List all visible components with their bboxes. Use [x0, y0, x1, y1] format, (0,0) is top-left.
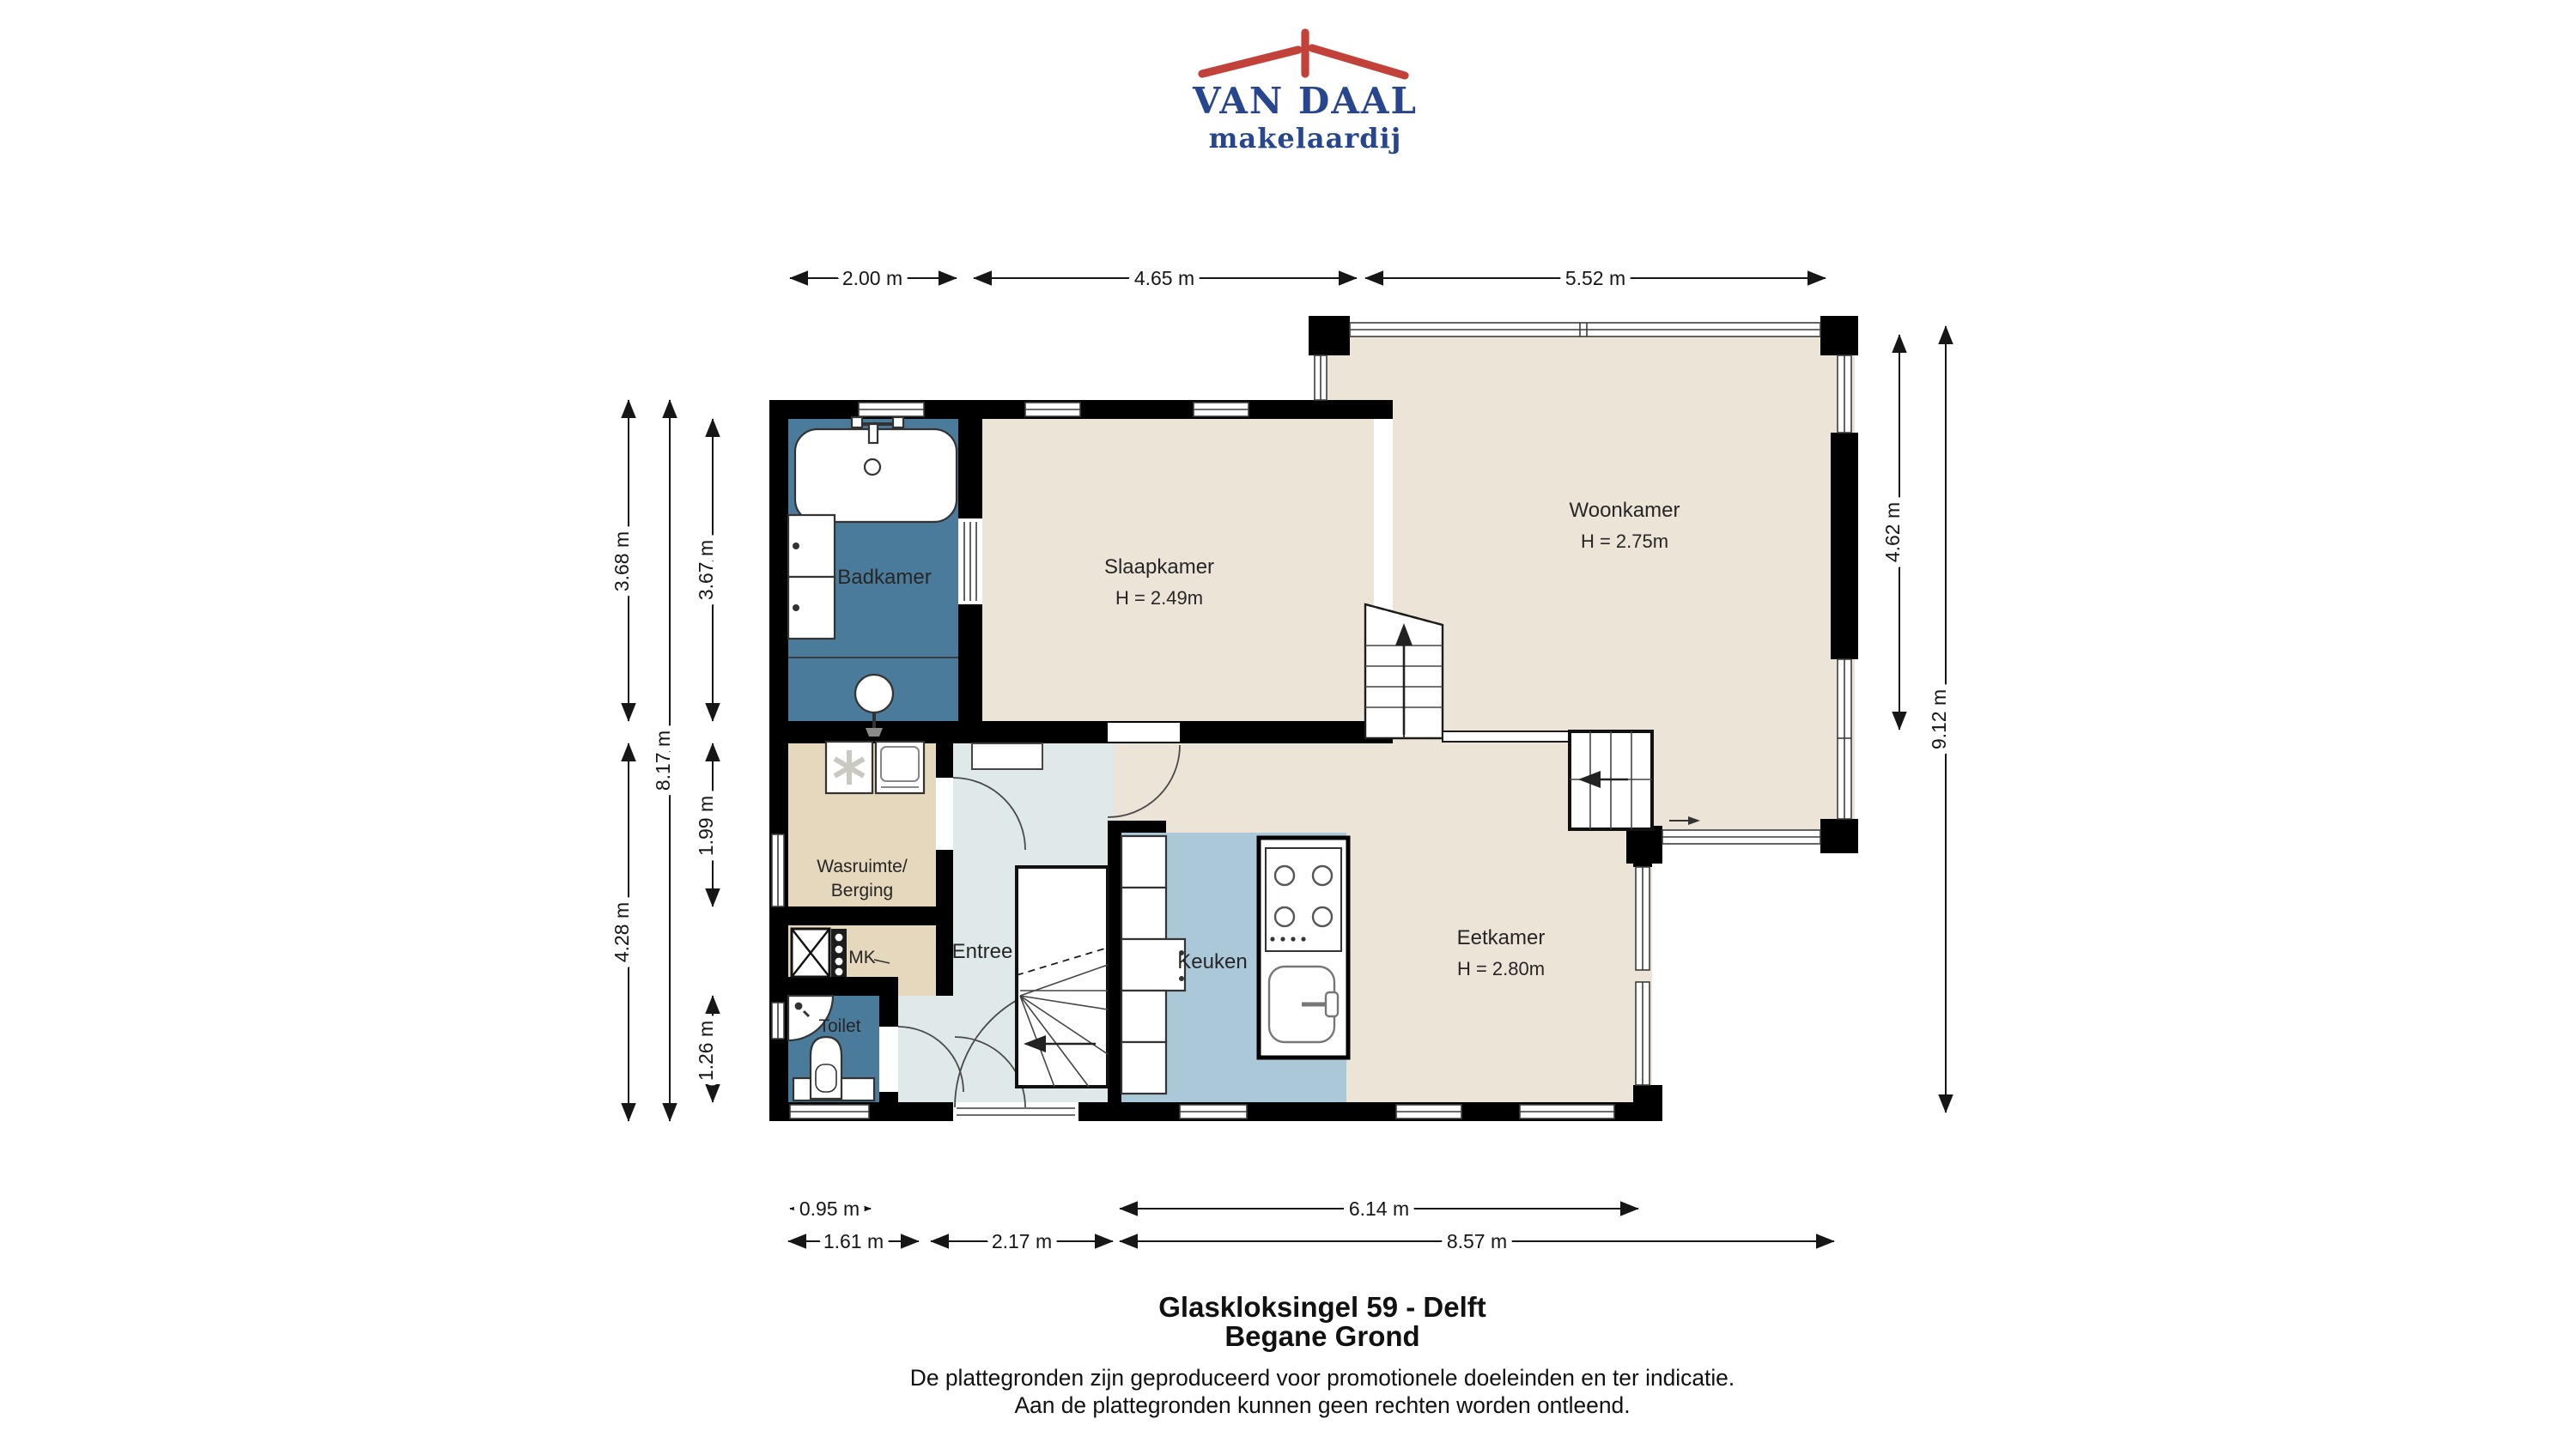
wall-woonkamer-right	[1831, 433, 1858, 659]
bathtub-fixture	[795, 417, 957, 522]
washing-machine-icon	[826, 742, 872, 793]
floorplan-page: VAN DAAL makelaardij	[0, 0, 2576, 1449]
window-badkamer-top	[859, 403, 924, 416]
dim-bottom-lower-3: 8.57 m	[1447, 1230, 1507, 1252]
window-woonkamer-right-1	[1838, 355, 1851, 433]
footer: Glaskloksingel 59 - Delft Begane Grond D…	[34, 1294, 2576, 1418]
pillar-woonkamer-topleft	[1309, 316, 1350, 355]
dim-right-inner: 4.62 m	[1881, 502, 1904, 562]
dim-bottom-lower-1: 1.61 m	[823, 1230, 884, 1252]
dim-top-2: 4.65 m	[1134, 267, 1194, 289]
window-slaapkamer-top-2	[1194, 403, 1249, 416]
stove-icon	[1266, 848, 1341, 951]
label-entree: Entree	[952, 940, 1013, 963]
window-eetkamer-right-2	[1636, 982, 1649, 1085]
floor-title: Begane Grond	[34, 1325, 2576, 1355]
dim-left-outer-1: 3.68 m	[611, 531, 633, 591]
window-bottom-2	[1180, 1105, 1247, 1119]
stairs-woonkamer-down	[1570, 731, 1652, 829]
wall-keuken-entree	[1108, 821, 1121, 1102]
meter-panel-icon	[831, 929, 847, 977]
window-woonkamer-right-2	[1838, 659, 1851, 819]
dim-left-inner-2: 1.99 m	[695, 796, 717, 856]
label-wasruimte-2: Berging	[831, 881, 893, 900]
entree-closet	[972, 743, 1042, 769]
label-slaapkamer-height: H = 2.49m	[1115, 587, 1203, 609]
window-bottom-3	[1396, 1105, 1461, 1119]
window-bottom-4	[1520, 1105, 1614, 1119]
dim-bottom-lower-2: 2.17 m	[992, 1230, 1052, 1252]
label-woonkamer-height: H = 2.75m	[1581, 530, 1668, 552]
label-wasruimte-1: Wasruimte/	[817, 857, 908, 876]
screenshot-root: VAN DAAL makelaardij	[0, 0, 2576, 1449]
window-wasruimte-left	[772, 834, 784, 906]
pillar-woonkamer-bottomright	[1820, 819, 1858, 853]
label-toilet: Toilet	[818, 1016, 860, 1036]
door-badkamer-sliding	[958, 518, 982, 604]
wall-wasruimte-bottom	[769, 906, 953, 925]
dim-left-middle: 8.17 m	[652, 731, 674, 791]
label-woonkamer: Woonkamer	[1570, 499, 1680, 522]
window-toilet-left	[772, 1003, 784, 1039]
dim-left-inner-3: 1.26 m	[695, 1021, 717, 1081]
vanity-fixture	[788, 515, 835, 639]
dim-left-inner-1: 3.67 m	[695, 540, 717, 600]
dryer-icon	[876, 742, 924, 793]
label-badkamer: Badkamer	[837, 566, 931, 589]
sink-icon	[1269, 967, 1338, 1042]
window-slaapkamer-top-1	[1025, 403, 1080, 416]
stairs-woonkamer-up	[1365, 604, 1443, 738]
kitchen-island	[1259, 838, 1348, 1058]
wall-eetkamer-right-top	[1633, 853, 1652, 867]
label-eetkamer: Eetkamer	[1457, 926, 1546, 949]
disclaimer-line-2: Aan de plattegronden kunnen geen rechten…	[34, 1394, 2576, 1419]
dim-bottom-upper-1: 0.95 m	[799, 1197, 860, 1220]
shaft-x-box	[792, 929, 829, 977]
window-eetkamer-right-1	[1636, 867, 1649, 970]
dim-top-1: 2.00 m	[842, 267, 902, 289]
wall-mk-toilet	[769, 977, 898, 996]
wall-bad-slaap-bottom	[769, 721, 1393, 743]
wasruimte-fixtures	[826, 742, 924, 793]
address-title: Glaskloksingel 59 - Delft	[34, 1294, 2576, 1325]
label-slaapkamer: Slaapkamer	[1104, 555, 1214, 579]
stairs-entree	[1017, 867, 1108, 1087]
dim-right-outer: 9.12 m	[1928, 689, 1950, 749]
disclaimer-line-1: De plattegronden zijn geproduceerd voor …	[34, 1366, 2576, 1391]
pillar-woonkamer-topright	[1820, 316, 1858, 355]
label-keuken: Keuken	[1177, 950, 1247, 973]
dim-bottom-upper-2: 6.14 m	[1349, 1197, 1409, 1220]
wall-mk-right	[936, 925, 953, 996]
window-woonkamer-bottom	[1662, 830, 1820, 844]
wall-keuken-cap	[1108, 821, 1166, 833]
dim-top-3: 5.52 m	[1565, 267, 1625, 289]
label-mk: MK	[848, 948, 876, 967]
dim-left-outer-2: 4.28 m	[611, 902, 633, 962]
label-eetkamer-height: H = 2.80m	[1457, 958, 1545, 979]
window-woonkamer-left-connector	[1315, 355, 1327, 400]
wall-eetkamer-corner	[1633, 1085, 1662, 1106]
window-bottom-1	[790, 1105, 869, 1119]
floorplan-drawing: Badkamer Slaapkamer H = 2.49m Woonkamer …	[0, 0, 2576, 1449]
window-woonkamer-top	[1350, 323, 1820, 336]
low-wall-stairs	[1443, 731, 1570, 742]
